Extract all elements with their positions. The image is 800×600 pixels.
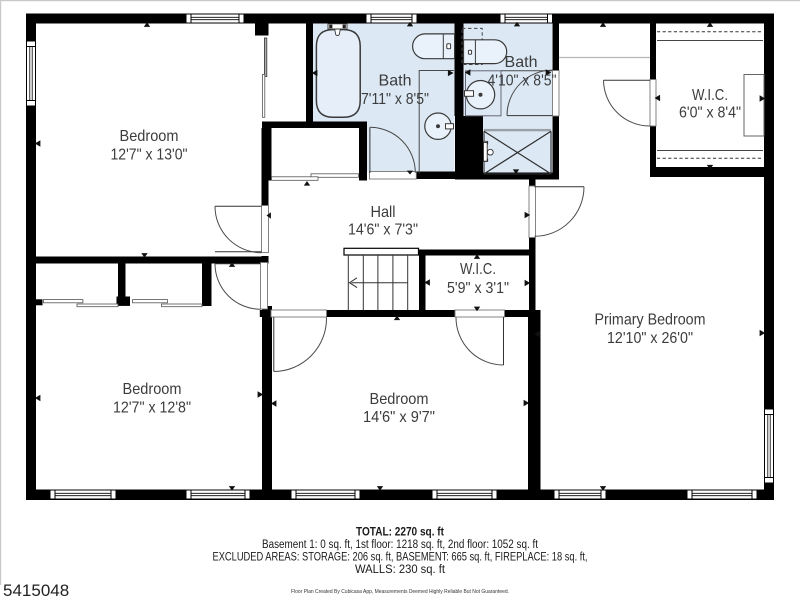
svg-text:12'7" x 13'0": 12'7" x 13'0" <box>111 146 188 163</box>
svg-text:12'10" x 26'0": 12'10" x 26'0" <box>607 330 693 347</box>
svg-text:TOTAL: 2270 sq. ft: TOTAL: 2270 sq. ft <box>356 527 444 539</box>
svg-text:W.I.C.: W.I.C. <box>460 261 496 278</box>
svg-text:5415048: 5415048 <box>3 581 69 600</box>
svg-text:5'9" x 3'1": 5'9" x 3'1" <box>447 280 509 297</box>
svg-text:Primary Bedroom: Primary Bedroom <box>595 312 706 329</box>
svg-text:W.I.C.: W.I.C. <box>692 87 728 104</box>
svg-text:Bath: Bath <box>505 54 538 71</box>
svg-text:Bedroom: Bedroom <box>370 391 429 408</box>
svg-text:Floor Plan Created By Cubicasa: Floor Plan Created By Cubicasa App, Meas… <box>291 589 509 595</box>
svg-text:4'10" x 8'5": 4'10" x 8'5" <box>488 72 557 89</box>
svg-text:WALLS: 230 sq. ft: WALLS: 230 sq. ft <box>355 564 446 576</box>
svg-text:Hall: Hall <box>371 204 396 221</box>
svg-text:Bedroom: Bedroom <box>120 128 179 145</box>
svg-text:Bedroom: Bedroom <box>123 381 182 398</box>
svg-text:Bath: Bath <box>379 73 412 90</box>
svg-text:EXCLUDED AREAS: STORAGE: 206 s: EXCLUDED AREAS: STORAGE: 206 sq. ft, BAS… <box>213 552 588 564</box>
svg-text:Basement 1: 0 sq. ft, 1st floo: Basement 1: 0 sq. ft, 1st floor: 1218 sq… <box>262 539 539 551</box>
svg-text:6'0" x 8'4": 6'0" x 8'4" <box>679 105 741 122</box>
svg-text:12'7" x 12'8": 12'7" x 12'8" <box>113 399 191 416</box>
svg-text:14'6" x 7'3": 14'6" x 7'3" <box>348 222 418 239</box>
svg-text:7'11" x 8'5": 7'11" x 8'5" <box>361 91 429 108</box>
svg-text:14'6" x 9'7": 14'6" x 9'7" <box>363 409 435 426</box>
